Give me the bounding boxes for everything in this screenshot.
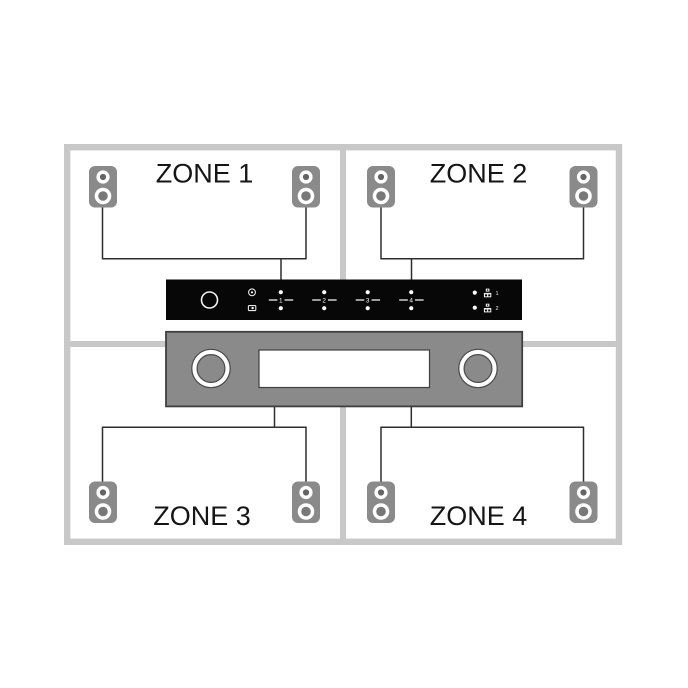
svg-text:2: 2 <box>322 297 326 304</box>
svg-text:4: 4 <box>409 297 413 304</box>
svg-text:3: 3 <box>366 297 370 304</box>
svg-text:ZONE 1: ZONE 1 <box>156 159 254 189</box>
svg-text:ZONE 4: ZONE 4 <box>430 501 528 531</box>
svg-text:ZONE 3: ZONE 3 <box>153 501 251 531</box>
svg-text:1: 1 <box>495 291 498 297</box>
svg-text:ZONE 2: ZONE 2 <box>430 159 528 189</box>
svg-text:2: 2 <box>495 306 498 312</box>
svg-text:1: 1 <box>279 297 283 304</box>
